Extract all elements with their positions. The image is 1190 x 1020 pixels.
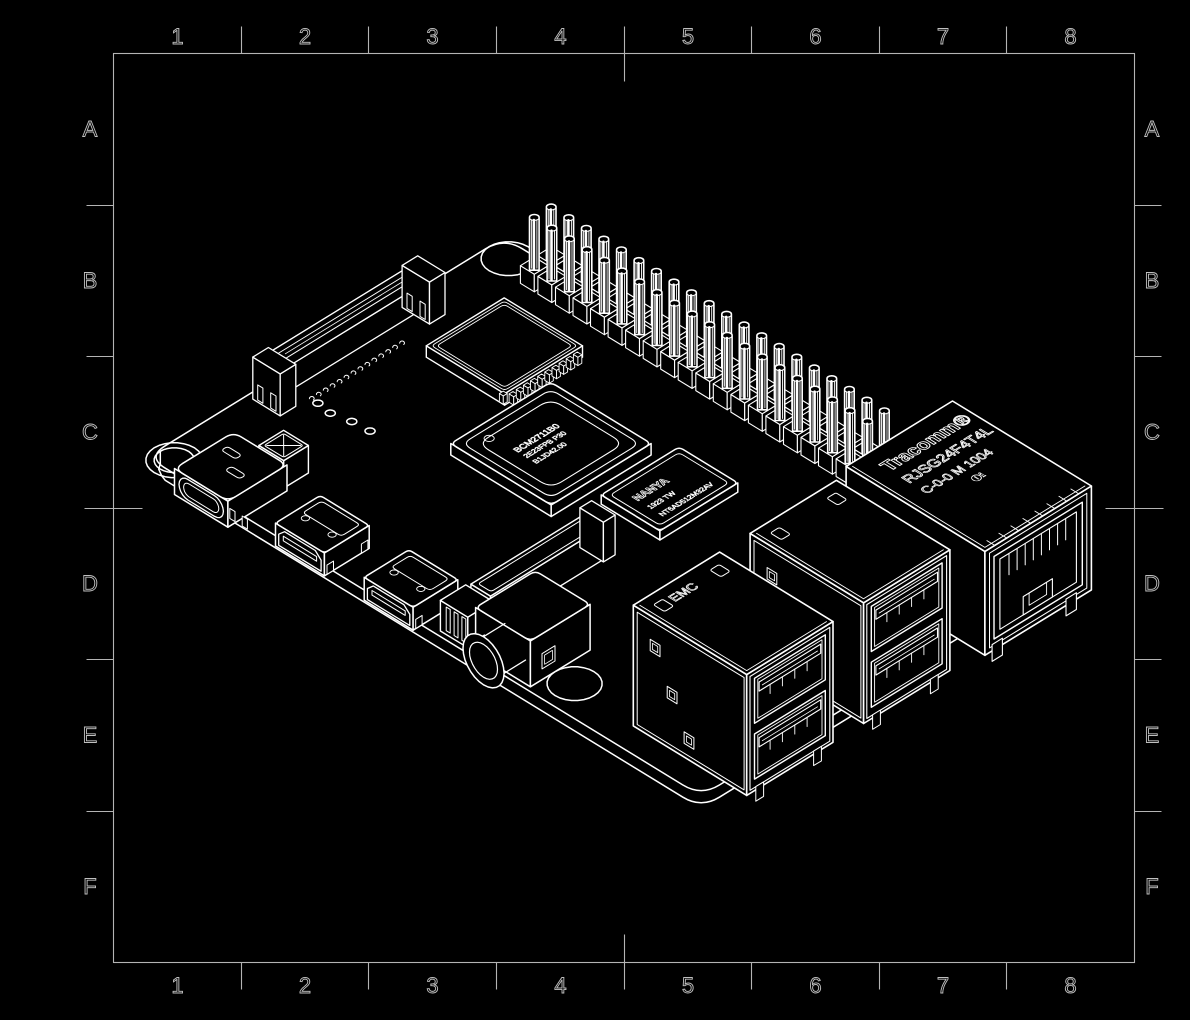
svg-text:2: 2 xyxy=(299,973,311,998)
svg-text:1: 1 xyxy=(171,973,183,998)
svg-text:D: D xyxy=(1144,571,1160,596)
svg-text:E: E xyxy=(1145,723,1160,748)
svg-text:6: 6 xyxy=(809,24,821,49)
svg-text:4: 4 xyxy=(554,24,566,49)
svg-text:5: 5 xyxy=(682,973,694,998)
svg-text:F: F xyxy=(83,874,96,899)
svg-text:E: E xyxy=(83,723,98,748)
svg-text:8: 8 xyxy=(1064,973,1076,998)
svg-text:A: A xyxy=(1145,117,1160,142)
svg-text:C: C xyxy=(1144,420,1160,445)
svg-text:4: 4 xyxy=(554,973,566,998)
svg-text:3: 3 xyxy=(426,973,438,998)
svg-text:7: 7 xyxy=(937,24,949,49)
svg-text:7: 7 xyxy=(937,973,949,998)
svg-text:3: 3 xyxy=(426,24,438,49)
svg-text:1: 1 xyxy=(171,24,183,49)
svg-text:6: 6 xyxy=(809,973,821,998)
svg-text:B: B xyxy=(83,268,98,293)
svg-text:5: 5 xyxy=(682,24,694,49)
svg-text:C: C xyxy=(82,420,98,445)
svg-text:A: A xyxy=(83,117,98,142)
svg-text:2: 2 xyxy=(299,24,311,49)
svg-text:B: B xyxy=(1145,268,1160,293)
svg-text:D: D xyxy=(82,571,98,596)
svg-text:8: 8 xyxy=(1064,24,1076,49)
svg-text:F: F xyxy=(1145,874,1158,899)
